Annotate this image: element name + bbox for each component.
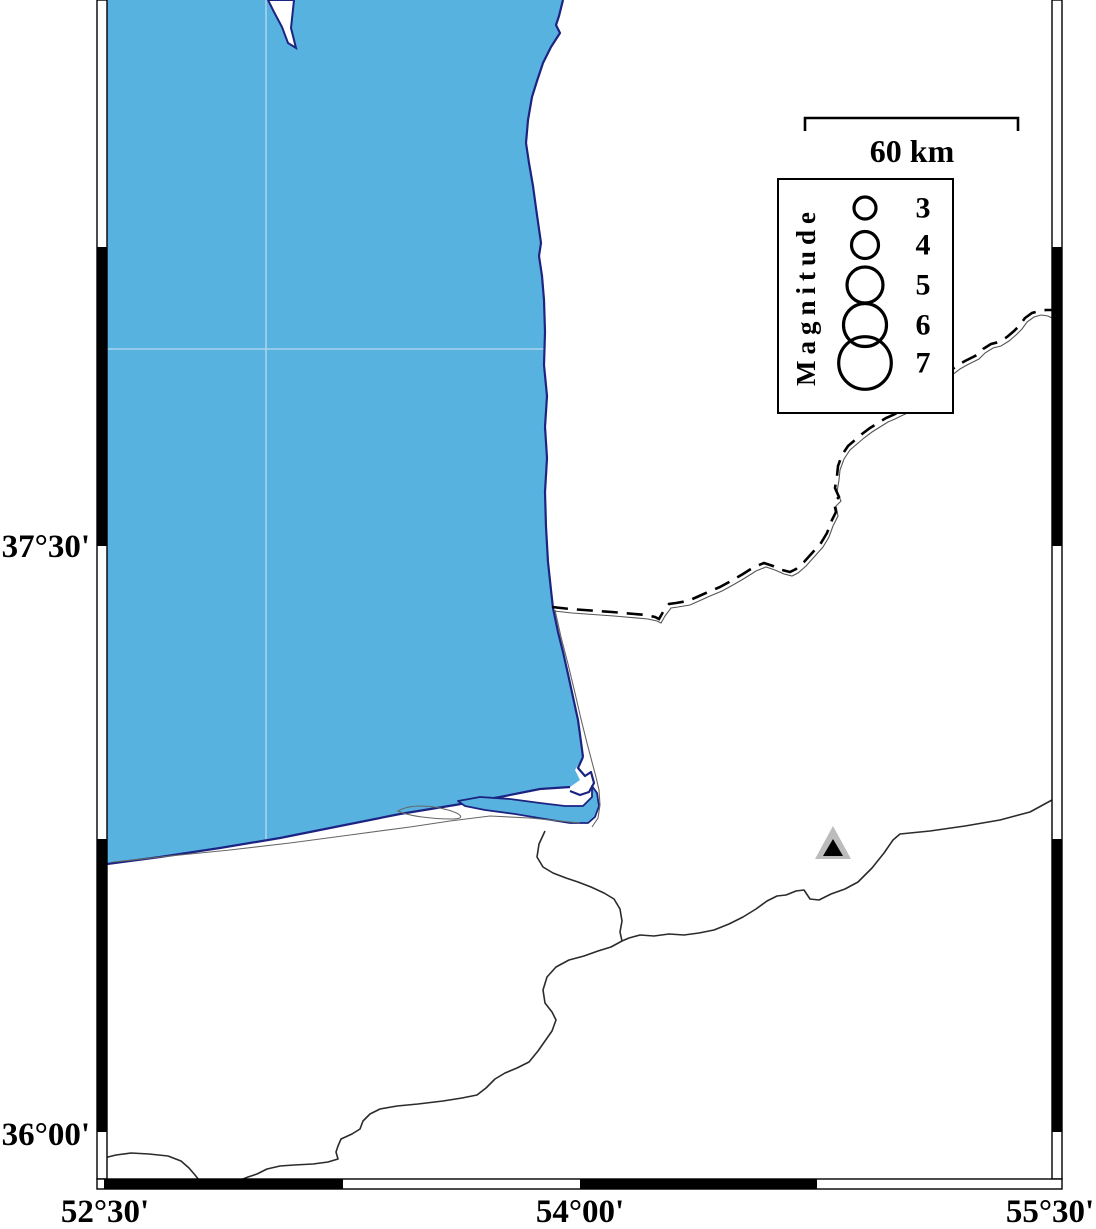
lon-label-52-30: 52°30' <box>61 1194 149 1229</box>
legend-value-3: 3 <box>916 192 931 225</box>
lon-label-55-30: 55°30' <box>1006 1194 1094 1229</box>
qarasu-tributary <box>537 831 622 941</box>
legend-value-4: 4 <box>916 229 931 262</box>
frame-right-black-2 <box>1052 839 1062 1132</box>
legend-value-5: 5 <box>916 269 931 302</box>
legend-title: Magnitude <box>791 206 821 386</box>
lat-label-36-00: 36°00' <box>2 1117 90 1153</box>
gorgan-river <box>243 800 1052 1179</box>
lon-label-54-00: 54°00' <box>536 1194 624 1229</box>
scale-bar-bracket <box>805 118 1018 131</box>
magnitude-legend: Magnitude 3 4 5 6 7 <box>778 179 953 413</box>
frame-bottom-black-2 <box>580 1179 817 1189</box>
station-triangle-marker <box>815 826 851 859</box>
frame-bottom-black-1 <box>104 1179 343 1189</box>
frame-left-black-2 <box>97 839 107 1132</box>
map-canvas: 60 km Magnitude 3 4 5 6 7 37°30' 36°00' … <box>0 0 1096 1229</box>
legend-value-7: 7 <box>916 347 931 380</box>
lat-label-37-30: 37°30' <box>2 529 90 565</box>
frame-left-black-1 <box>97 247 107 546</box>
frame-right-black-1 <box>1052 247 1062 546</box>
caspian-sea-polygon <box>107 0 583 864</box>
southwest-river <box>104 1153 199 1180</box>
river-group <box>104 800 1052 1180</box>
scale-bar-label: 60 km <box>870 133 955 169</box>
legend-value-6: 6 <box>916 309 931 342</box>
legend-values: 3 4 5 6 7 <box>916 192 931 380</box>
scale-bar: 60 km <box>805 118 1018 169</box>
